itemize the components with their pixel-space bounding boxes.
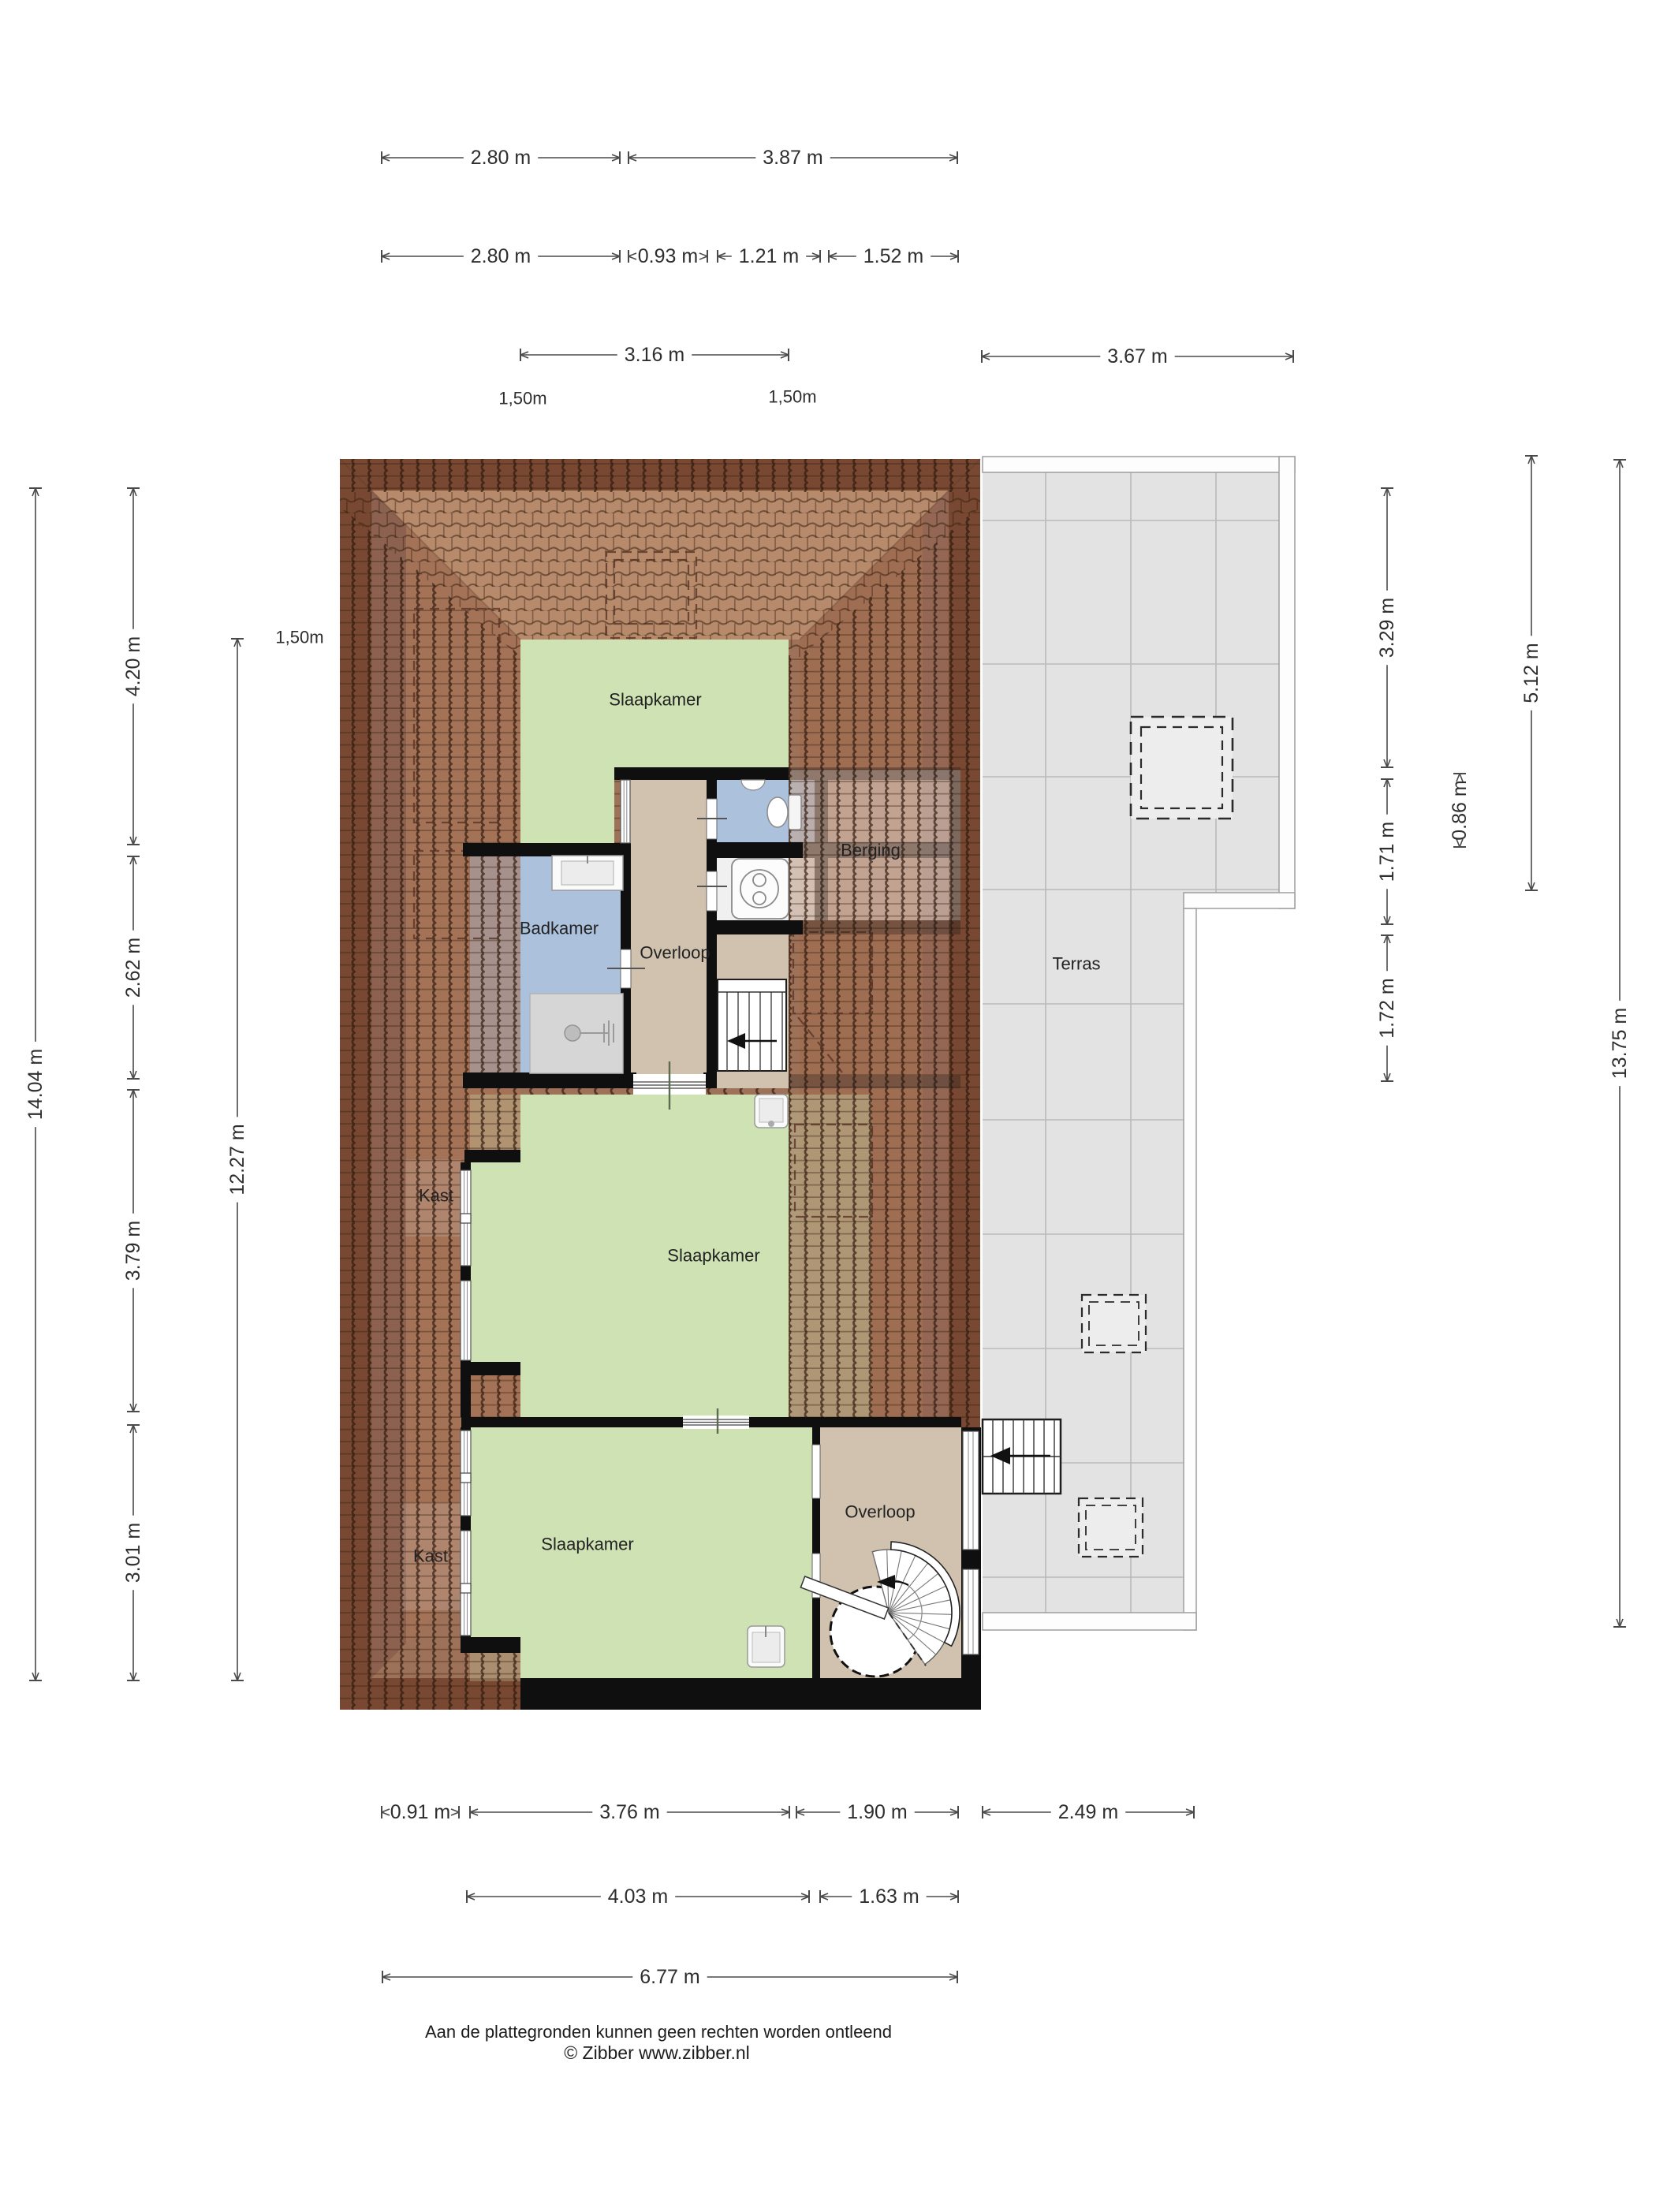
svg-text:0.93 m: 0.93 m — [638, 245, 698, 267]
svg-text:3.01 m: 3.01 m — [122, 1523, 144, 1583]
svg-text:3.79 m: 3.79 m — [122, 1221, 144, 1281]
svg-text:2.49 m: 2.49 m — [1058, 1801, 1118, 1823]
svg-text:2.80 m: 2.80 m — [471, 147, 531, 169]
svg-text:0.86 m: 0.86 m — [1449, 780, 1471, 840]
svg-text:Berging: Berging — [841, 841, 901, 860]
svg-text:3.87 m: 3.87 m — [763, 147, 822, 169]
svg-text:2.80 m: 2.80 m — [471, 245, 531, 267]
svg-text:12.27 m: 12.27 m — [226, 1124, 248, 1195]
svg-text:1.52 m: 1.52 m — [863, 245, 923, 267]
svg-text:Terras: Terras — [1052, 954, 1100, 974]
svg-text:Slaapkamer: Slaapkamer — [541, 1535, 633, 1554]
svg-text:Kast: Kast — [413, 1546, 448, 1566]
svg-text:Slaapkamer: Slaapkamer — [667, 1246, 759, 1266]
svg-text:1.72 m: 1.72 m — [1376, 978, 1398, 1038]
svg-text:Aan de plattegronden kunnen ge: Aan de plattegronden kunnen geen rechten… — [425, 2022, 892, 2042]
svg-text:4.03 m: 4.03 m — [608, 1886, 668, 1908]
svg-text:14.04 m: 14.04 m — [24, 1049, 47, 1120]
svg-text:3.16 m: 3.16 m — [625, 344, 684, 366]
svg-text:1.21 m: 1.21 m — [739, 245, 799, 267]
svg-text:0.91 m: 0.91 m — [390, 1801, 450, 1823]
svg-text:Overloop: Overloop — [640, 943, 710, 963]
svg-text:5.12 m: 5.12 m — [1520, 643, 1542, 703]
svg-text:1.63 m: 1.63 m — [859, 1886, 919, 1908]
svg-text:Kast: Kast — [419, 1186, 453, 1206]
svg-text:1.90 m: 1.90 m — [847, 1801, 907, 1823]
svg-text:6.77 m: 6.77 m — [640, 1966, 699, 1988]
svg-text:Slaapkamer: Slaapkamer — [609, 690, 701, 710]
svg-text:3.76 m: 3.76 m — [599, 1801, 659, 1823]
svg-text:Badkamer: Badkamer — [520, 919, 599, 938]
svg-text:4.20 m: 4.20 m — [122, 636, 144, 696]
svg-text:1.71 m: 1.71 m — [1376, 822, 1398, 882]
svg-text:2.62 m: 2.62 m — [122, 938, 144, 998]
svg-text:3.67 m: 3.67 m — [1107, 345, 1167, 367]
svg-text:13.75 m: 13.75 m — [1609, 1008, 1631, 1079]
svg-text:Overloop: Overloop — [845, 1502, 915, 1522]
svg-text:1,50m: 1,50m — [275, 628, 323, 647]
svg-text:© Zibber www.zibber.nl: © Zibber www.zibber.nl — [564, 2042, 750, 2063]
svg-text:1,50m: 1,50m — [498, 389, 546, 408]
svg-text:3.29 m: 3.29 m — [1376, 598, 1398, 658]
svg-text:1,50m: 1,50m — [768, 387, 816, 407]
